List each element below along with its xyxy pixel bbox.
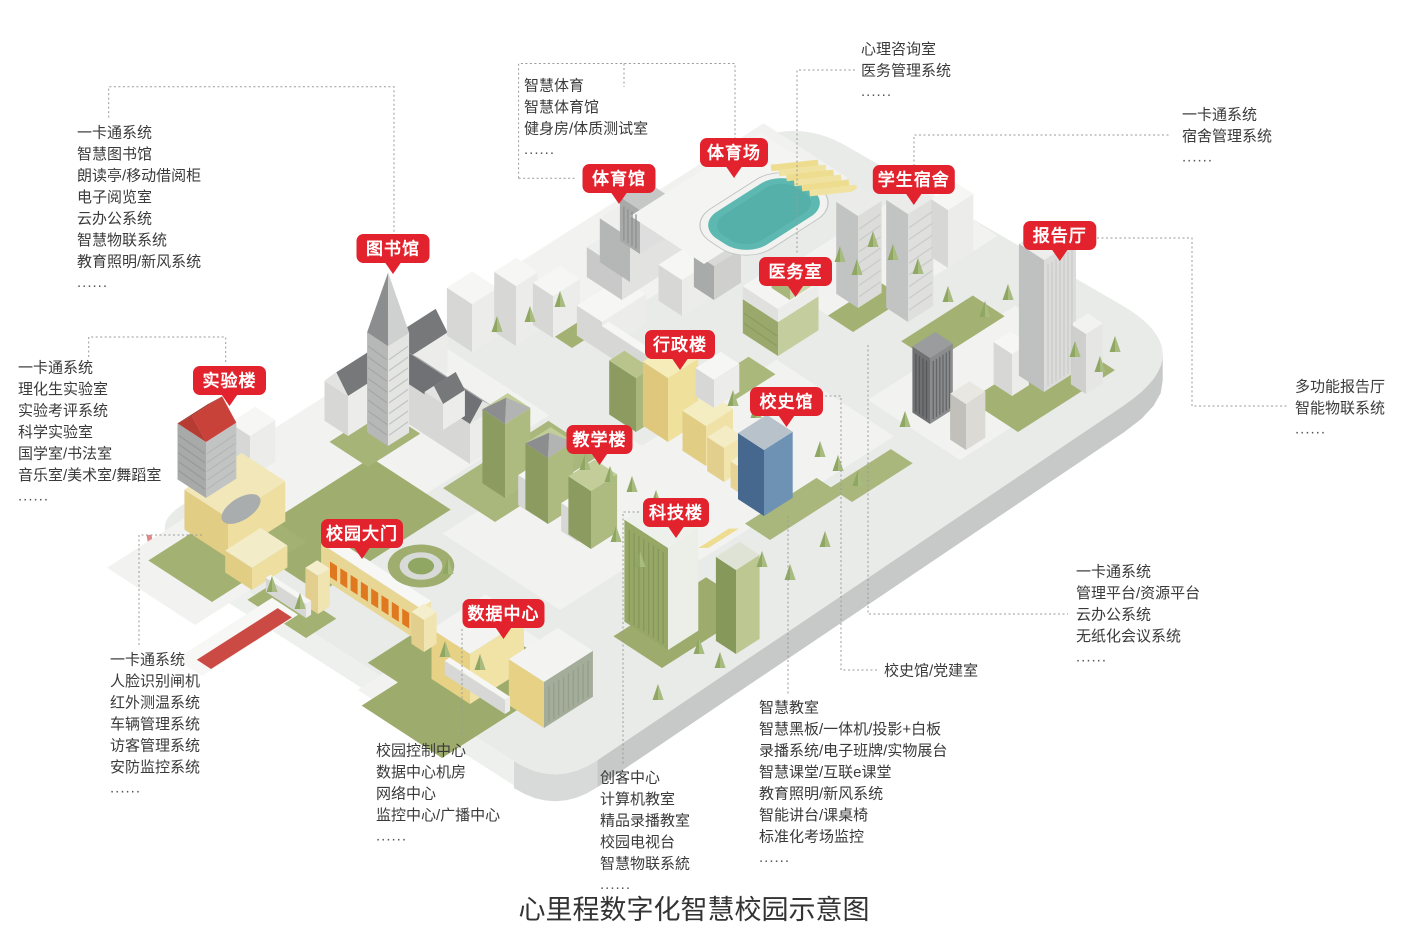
svg-text:云办公系统: 云办公系统 xyxy=(1076,607,1151,624)
svg-text:音乐室/美术室/舞蹈室: 音乐室/美术室/舞蹈室 xyxy=(18,467,161,484)
svg-text:智慧体育馆: 智慧体育馆 xyxy=(524,98,599,116)
svg-text:体育馆: 体育馆 xyxy=(592,169,646,189)
svg-text:一卡通系统: 一卡通系统 xyxy=(1182,107,1257,124)
svg-text:校史馆: 校史馆 xyxy=(760,392,814,412)
svg-text:......: ...... xyxy=(1182,149,1213,166)
svg-text:体育场: 体育场 xyxy=(707,143,761,163)
svg-text:访客管理系统: 访客管理系统 xyxy=(110,738,200,755)
svg-text:学生宿舍: 学生宿舍 xyxy=(878,170,950,190)
svg-text:......: ...... xyxy=(1295,421,1326,438)
svg-text:国学室/书法室: 国学室/书法室 xyxy=(18,446,112,463)
svg-text:数据中心机房: 数据中心机房 xyxy=(376,764,466,781)
svg-text:智慧图书馆: 智慧图书馆 xyxy=(77,145,152,163)
svg-text:教学楼: 教学楼 xyxy=(572,430,627,450)
svg-text:图书馆: 图书馆 xyxy=(366,239,420,259)
svg-text:实验考评系统: 实验考评系统 xyxy=(18,403,108,420)
svg-text:......: ...... xyxy=(600,876,631,893)
svg-text:心里程数字化智慧校园示意图: 心里程数字化智慧校园示意图 xyxy=(519,895,870,925)
svg-text:科技楼: 科技楼 xyxy=(649,503,703,523)
svg-text:理化生实验室: 理化生实验室 xyxy=(18,381,108,398)
svg-text:宿舍管理系统: 宿舍管理系统 xyxy=(1182,128,1272,145)
svg-text:智慧体育: 智慧体育 xyxy=(524,77,584,95)
svg-text:一卡通系统: 一卡通系统 xyxy=(18,360,93,377)
svg-text:无纸化会议系统: 无纸化会议系统 xyxy=(1076,628,1181,645)
svg-text:教育照明/新风系统: 教育照明/新风系统 xyxy=(759,786,883,803)
svg-text:......: ...... xyxy=(77,274,108,291)
svg-text:医务室: 医务室 xyxy=(769,262,823,282)
svg-text:......: ...... xyxy=(524,141,555,158)
svg-text:校园控制中心: 校园控制中心 xyxy=(376,743,466,760)
svg-text:......: ...... xyxy=(376,828,407,845)
svg-text:智慧黑板/一体机/投影+白板: 智慧黑板/一体机/投影+白板 xyxy=(759,720,941,738)
svg-text:教育照明/新风系统: 教育照明/新风系统 xyxy=(77,254,201,271)
svg-text:车辆管理系统: 车辆管理系统 xyxy=(110,716,200,733)
svg-text:多功能报告厅: 多功能报告厅 xyxy=(1295,379,1385,396)
svg-text:科学实验室: 科学实验室 xyxy=(18,424,93,441)
svg-text:一卡通系统: 一卡通系统 xyxy=(77,125,152,142)
svg-text:校史馆/党建室: 校史馆/党建室 xyxy=(884,663,978,680)
svg-text:智慧物联系统: 智慧物联系统 xyxy=(77,231,167,249)
svg-text:计算机教室: 计算机教室 xyxy=(600,790,675,808)
svg-text:网络中心: 网络中心 xyxy=(376,786,436,803)
svg-text:健身房/体质测试室: 健身房/体质测试室 xyxy=(524,121,648,138)
svg-text:监控中心/广播中心: 监控中心/广播中心 xyxy=(376,807,500,824)
svg-text:录播系统/电子班牌/实物展台: 录播系统/电子班牌/实物展台 xyxy=(759,743,947,760)
svg-text:智能讲台/课桌椅: 智能讲台/课桌椅 xyxy=(759,806,868,824)
svg-text:校园大门: 校园大门 xyxy=(326,524,398,544)
svg-text:人脸识别闸机: 人脸识别闸机 xyxy=(110,673,200,690)
svg-text:一卡通系统: 一卡通系统 xyxy=(110,652,185,669)
svg-text:安防监控系统: 安防监控系统 xyxy=(110,759,200,776)
svg-text:......: ...... xyxy=(110,780,141,797)
svg-text:管理平台/资源平台: 管理平台/资源平台 xyxy=(1076,585,1200,602)
svg-text:......: ...... xyxy=(861,83,892,100)
svg-text:报告厅: 报告厅 xyxy=(1033,226,1087,246)
svg-text:......: ...... xyxy=(18,488,49,505)
svg-text:......: ...... xyxy=(759,849,790,866)
svg-text:智慧教室: 智慧教室 xyxy=(759,699,819,717)
svg-text:红外测温系统: 红外测温系统 xyxy=(110,695,200,712)
svg-text:校园电视台: 校园电视台 xyxy=(600,834,675,851)
svg-text:标准化考场监控: 标准化考场监控 xyxy=(759,829,864,846)
svg-text:朗读亭/移动借阅柜: 朗读亭/移动借阅柜 xyxy=(77,167,201,185)
svg-text:精品录播教室: 精品录播教室 xyxy=(600,813,690,830)
svg-text:行政楼: 行政楼 xyxy=(652,335,707,355)
svg-text:云办公系统: 云办公系统 xyxy=(77,211,152,228)
svg-text:一卡通系统: 一卡通系统 xyxy=(1076,564,1151,581)
svg-text:电子阅览室: 电子阅览室 xyxy=(77,189,152,206)
svg-text:智慧物联系統: 智慧物联系統 xyxy=(600,855,690,873)
svg-text:智能物联系统: 智能物联系统 xyxy=(1295,399,1385,417)
svg-text:创客中心: 创客中心 xyxy=(600,770,660,787)
svg-text:数据中心: 数据中心 xyxy=(468,604,540,624)
svg-text:......: ...... xyxy=(1076,649,1107,666)
svg-text:医务管理系统: 医务管理系统 xyxy=(861,63,951,80)
svg-text:实验楼: 实验楼 xyxy=(203,371,257,391)
svg-text:智慧课堂/互联e课堂: 智慧课堂/互联e课堂 xyxy=(759,763,892,781)
svg-text:心理咨询室: 心理咨询室 xyxy=(861,41,936,58)
